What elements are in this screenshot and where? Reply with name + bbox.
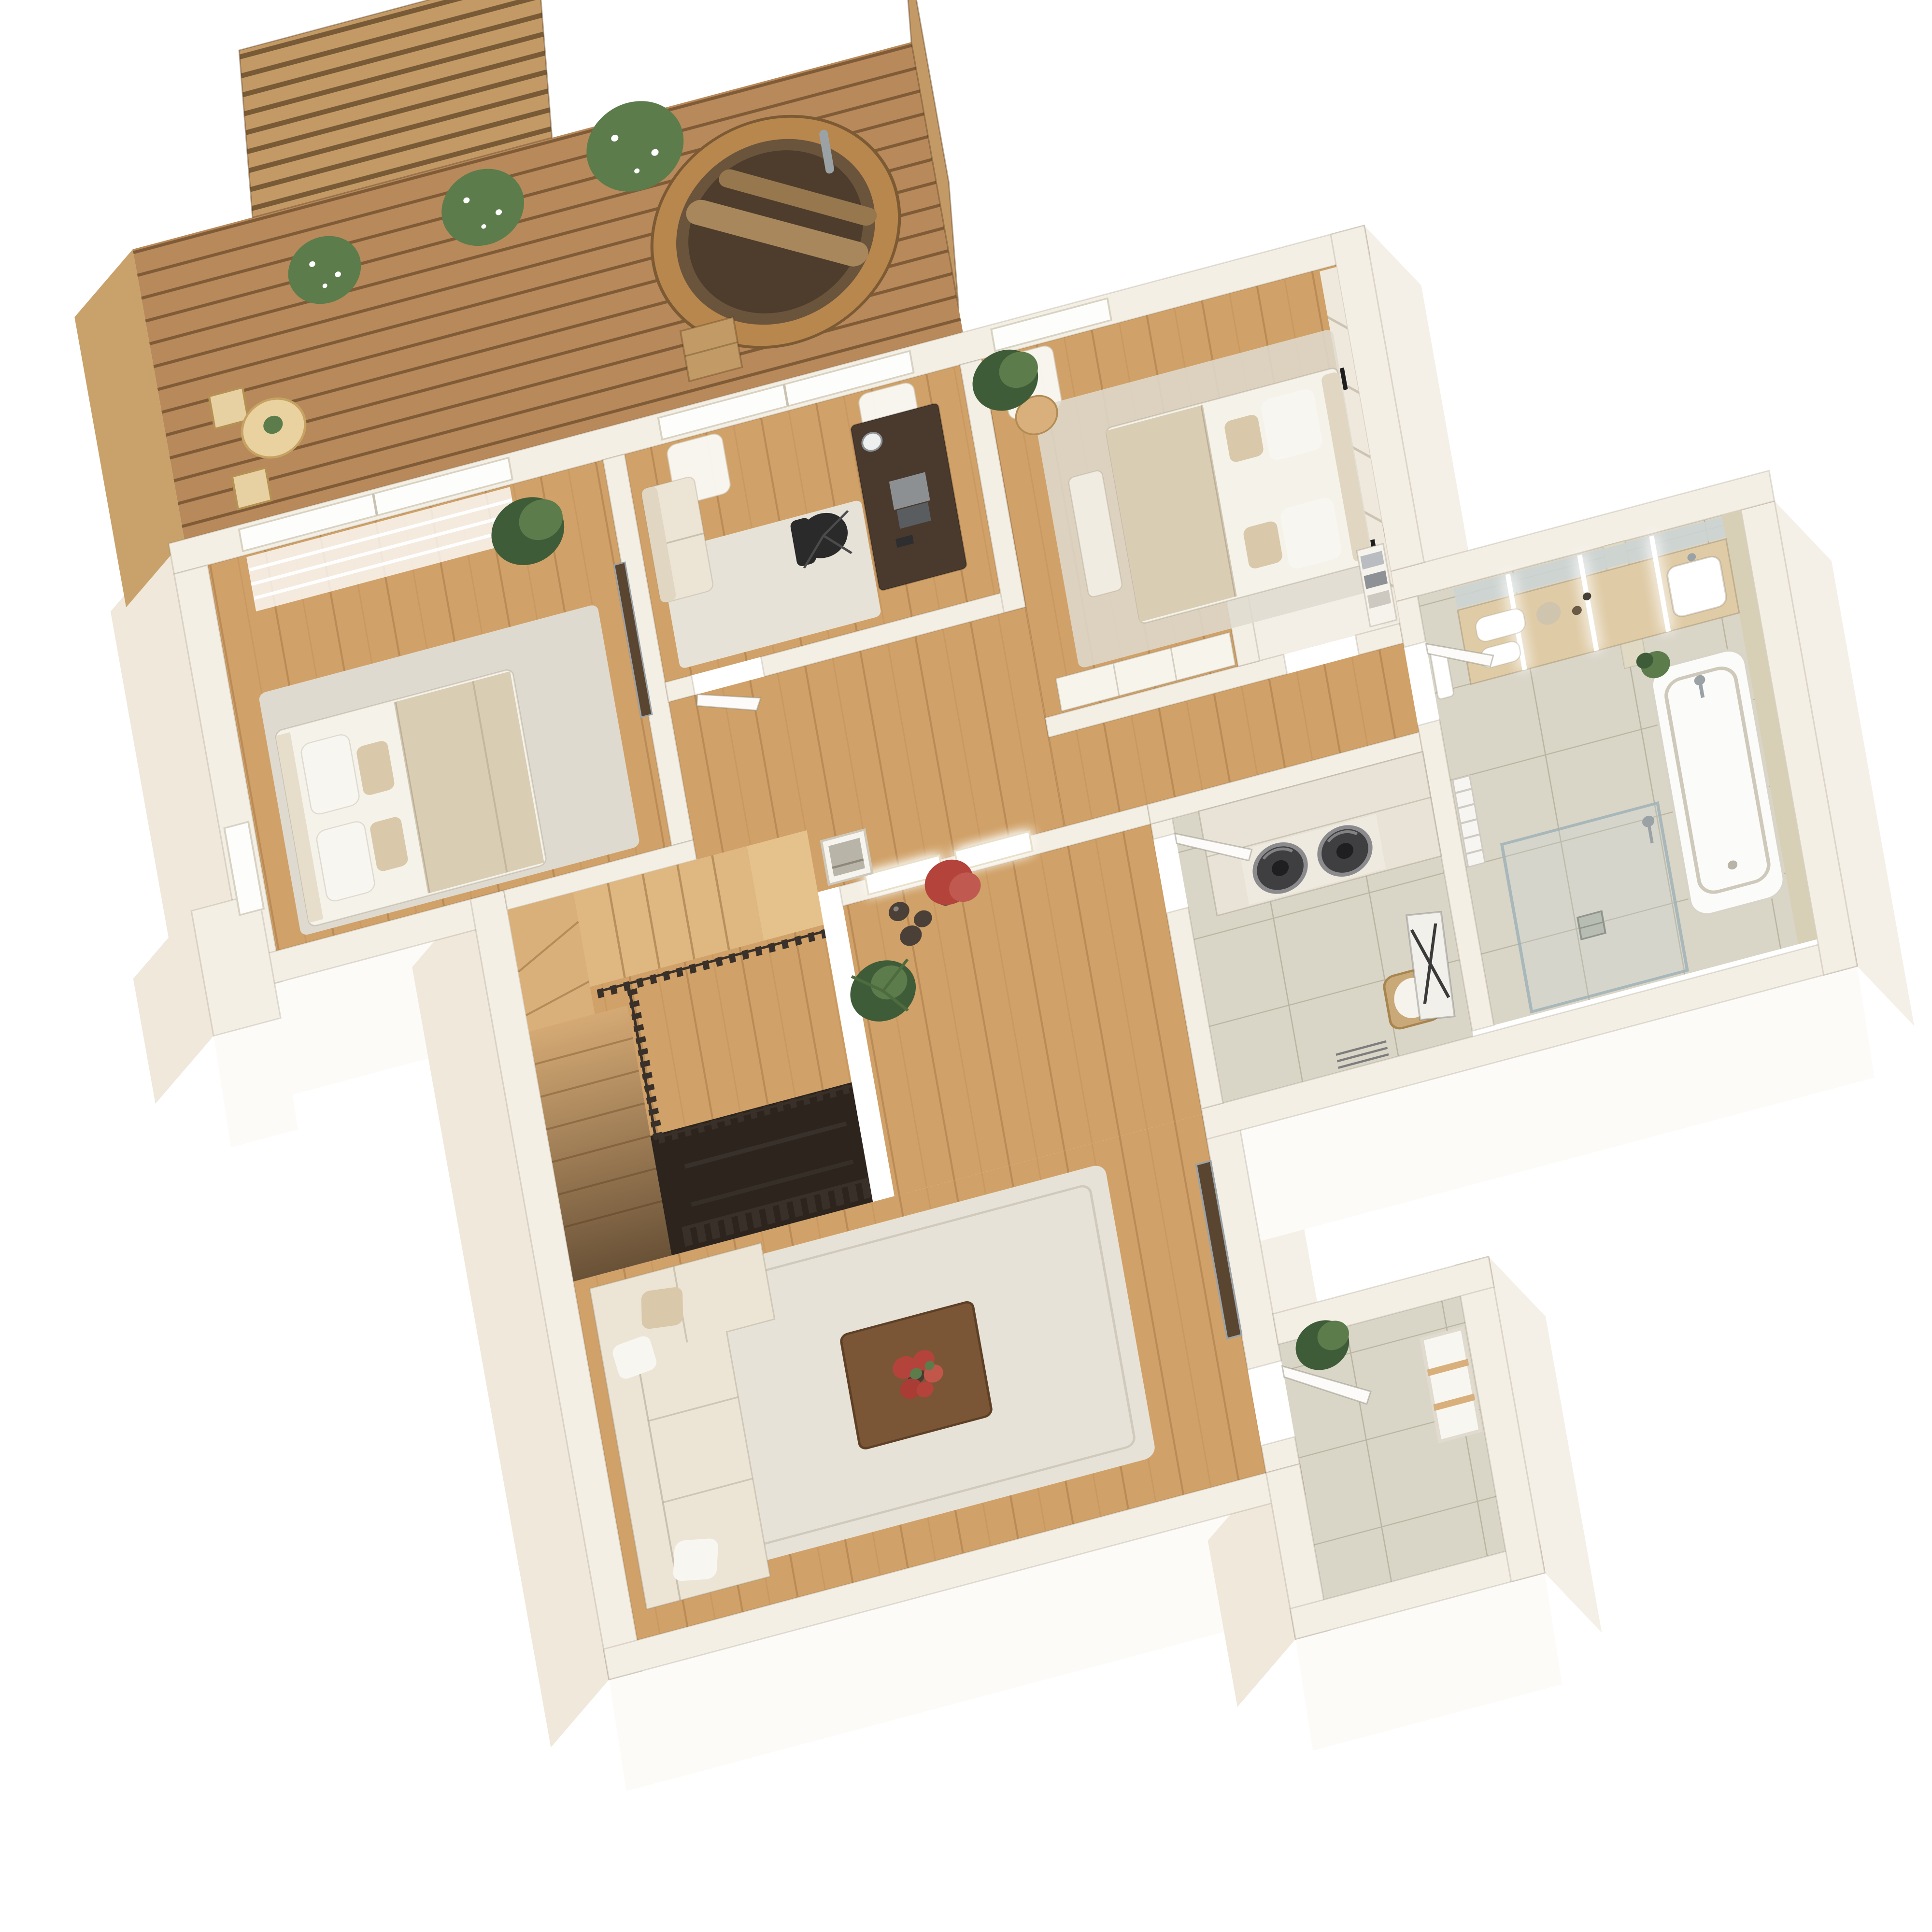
floor-plan-render [0, 0, 1932, 1932]
pillow [1223, 413, 1264, 464]
sofa-pillow [641, 1286, 683, 1330]
pillow [1242, 520, 1283, 570]
floor-plan-svg [0, 0, 1932, 1932]
sofa-pillow [673, 1538, 719, 1582]
isometric-plan [0, 0, 1932, 1932]
